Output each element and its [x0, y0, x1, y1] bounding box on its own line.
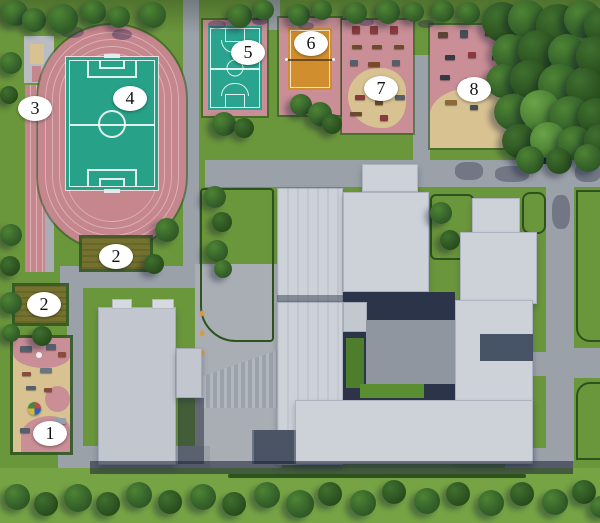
play-equipment — [445, 55, 455, 60]
tree — [34, 492, 58, 516]
tree — [234, 118, 254, 138]
play-equipment — [355, 95, 365, 100]
field-goal-bottom — [104, 189, 120, 193]
school-wing-north-center — [343, 192, 429, 292]
school-site-plan: 3 4 5 6 7 8 2 2 1 — [0, 0, 600, 523]
play-equipment — [20, 428, 30, 433]
net-post — [285, 58, 288, 61]
play-equipment — [58, 352, 66, 357]
street-lamp — [200, 331, 204, 336]
tree — [288, 4, 310, 26]
bench — [445, 100, 457, 105]
label-area-2-upper: 2 — [99, 244, 133, 269]
tree — [212, 112, 236, 136]
tree — [458, 2, 480, 24]
east-wing-window-band — [480, 334, 533, 361]
road-west-horizontal — [60, 266, 200, 288]
play-equipment — [352, 26, 360, 34]
tree — [440, 230, 460, 250]
tree — [212, 212, 232, 232]
tree — [228, 4, 252, 28]
courtyard-grass — [346, 338, 364, 388]
school-wing-northwest — [277, 188, 343, 302]
bench — [394, 45, 404, 49]
main-entrance-dark — [252, 430, 296, 464]
tree — [312, 0, 332, 20]
tree-shadow — [208, 20, 226, 29]
street-lamp — [200, 311, 204, 316]
tree — [144, 254, 164, 274]
tree — [214, 260, 232, 278]
tree — [254, 0, 274, 20]
tree — [286, 490, 314, 518]
tree — [345, 2, 367, 24]
school-wing-north-notch — [362, 164, 418, 192]
field-goal-box-top — [99, 60, 125, 69]
tree — [64, 484, 92, 512]
tree — [430, 202, 452, 224]
play-equipment — [392, 60, 400, 66]
tree — [446, 482, 470, 506]
label-area-6: 6 — [294, 31, 328, 56]
tree — [206, 240, 228, 262]
tree — [376, 0, 400, 24]
tree — [414, 488, 440, 514]
play-equipment — [350, 60, 358, 66]
label-area-3: 3 — [18, 96, 52, 121]
play-equipment — [468, 52, 476, 58]
play-equipment — [20, 346, 32, 352]
tree — [158, 490, 182, 514]
carousel — [28, 402, 41, 415]
tree-shadow — [552, 195, 570, 229]
play-equipment — [460, 30, 468, 38]
play-equipment — [470, 105, 478, 110]
net-post — [332, 58, 335, 61]
play-equipment — [46, 344, 56, 350]
bench — [352, 45, 362, 49]
path-playgrounds-gap — [413, 55, 430, 167]
basketball-court — [208, 26, 262, 110]
tree — [432, 0, 454, 22]
tree — [126, 482, 152, 508]
tree — [0, 224, 22, 246]
school-wing-south — [295, 400, 533, 464]
tree — [404, 2, 424, 22]
gym-building — [98, 307, 176, 465]
tree — [322, 114, 342, 134]
tree — [546, 148, 572, 174]
courtyard — [343, 292, 455, 400]
road-east-building-link — [531, 352, 547, 376]
tree — [0, 86, 18, 104]
school-wing-northeast-upper — [472, 198, 520, 234]
bench — [372, 45, 382, 49]
tree — [22, 8, 46, 32]
tree — [510, 482, 534, 506]
tree — [155, 218, 179, 242]
northwest-wing-shadow-line — [277, 295, 343, 302]
hedge-lawn-west-of-building — [200, 188, 274, 342]
volleyball-net-line — [286, 59, 334, 61]
field-goal-box-bottom — [99, 178, 125, 187]
slide — [40, 368, 52, 373]
tree — [4, 484, 30, 510]
hedge-lawn-east-road-lower — [576, 382, 600, 460]
tree — [48, 4, 78, 34]
play-equipment — [368, 62, 380, 67]
tree — [542, 489, 568, 515]
tree — [382, 480, 406, 504]
basketball-court-surround — [203, 20, 267, 116]
play-equipment — [26, 386, 36, 390]
play-equipment — [22, 372, 31, 376]
play-equipment — [440, 75, 450, 80]
tree — [190, 484, 216, 510]
label-area-8: 8 — [457, 77, 491, 102]
tree — [140, 2, 166, 28]
tree — [96, 492, 120, 516]
tree-shadow — [418, 20, 434, 28]
football-field — [66, 57, 158, 190]
building-south-shadow — [90, 461, 573, 474]
tree — [222, 492, 246, 516]
tree — [318, 482, 342, 506]
gym-roof-step — [152, 299, 174, 309]
bench — [350, 112, 362, 116]
label-area-7: 7 — [364, 76, 398, 101]
courtyard-grass — [360, 384, 424, 398]
tree — [32, 326, 52, 346]
tree — [0, 292, 22, 314]
tree — [0, 256, 20, 276]
ball — [36, 352, 42, 358]
label-area-2-lower: 2 — [27, 292, 61, 317]
hedge-lawn-northeast-small — [522, 192, 546, 234]
tree-shadow — [455, 162, 483, 180]
tree — [478, 490, 504, 516]
play-equipment — [44, 388, 52, 392]
play-equipment — [380, 115, 388, 121]
tree-shadow — [112, 29, 132, 40]
tree — [0, 52, 22, 74]
sand-pit — [30, 44, 44, 64]
road-east-branch — [573, 348, 600, 378]
annex-shadow — [178, 398, 204, 464]
tree — [254, 482, 280, 508]
tree — [2, 324, 20, 342]
tree — [82, 0, 106, 24]
play-equipment — [390, 26, 398, 34]
label-area-5: 5 — [231, 40, 265, 65]
field-center-circle — [98, 110, 126, 138]
school-wing-northeast — [460, 232, 537, 304]
label-area-4: 4 — [113, 86, 147, 111]
field-goal-top — [104, 54, 120, 58]
tree — [574, 144, 600, 172]
hedge-lawn-east-road-upper — [576, 190, 600, 342]
hedge-south-lawn — [228, 474, 526, 478]
courtyard-paving — [366, 320, 455, 384]
play-equipment — [370, 26, 378, 34]
tree — [204, 186, 226, 208]
gym-roof-step — [112, 299, 132, 309]
play-equipment — [438, 32, 448, 38]
gym-annex — [176, 348, 202, 398]
play-equipment — [395, 95, 405, 100]
tree — [350, 490, 376, 516]
courtyard-building-stub — [343, 302, 367, 332]
label-area-1: 1 — [33, 421, 67, 446]
court-key-bottom — [225, 94, 245, 108]
tree — [516, 146, 544, 174]
tree — [108, 6, 130, 28]
